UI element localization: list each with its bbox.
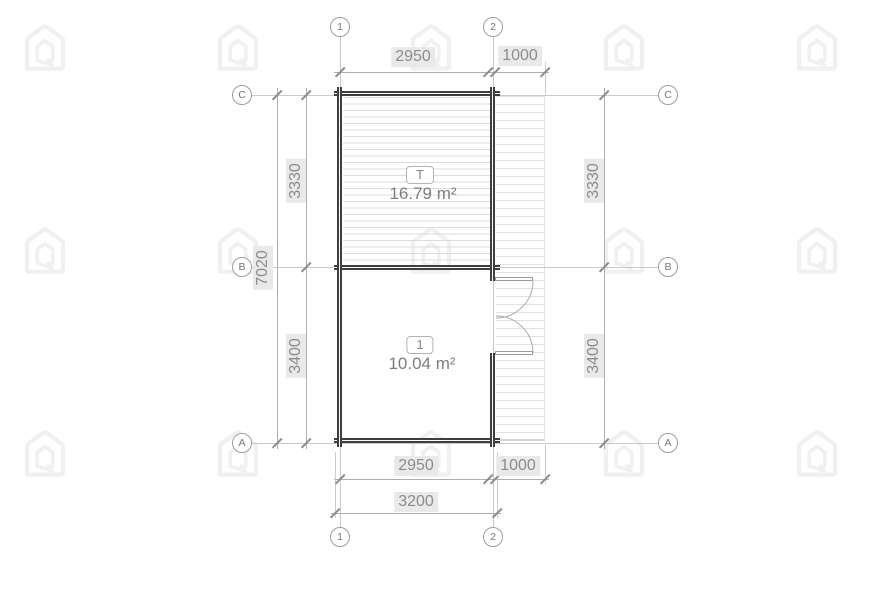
grid-bubble-1-top: 1 bbox=[330, 17, 350, 37]
grid-line-A bbox=[252, 443, 659, 444]
house-logo-watermark-icon bbox=[208, 17, 268, 77]
dim-line-top bbox=[334, 72, 549, 73]
dim-label-left-3400: 3400 bbox=[286, 334, 306, 378]
floor-plan-canvas: 2950 1000 2950 1000 3200 7020 3330 3400 … bbox=[0, 0, 886, 590]
room-area-1: 10.04 m² bbox=[388, 354, 455, 374]
grid-bubble-C-left: C bbox=[232, 85, 252, 105]
grid-bubble-A-right: A bbox=[658, 433, 678, 453]
grid-bubble-1-bottom: 1 bbox=[330, 527, 350, 547]
terrace-hatch bbox=[496, 96, 545, 441]
door-swing-arcs bbox=[490, 270, 545, 360]
dim-label-left-7020: 7020 bbox=[253, 246, 273, 290]
dim-label-right-3330: 3330 bbox=[584, 159, 604, 203]
room-tag-1: 1 bbox=[406, 336, 433, 354]
grid-bubble-B-left: B bbox=[232, 257, 252, 277]
wall-left bbox=[337, 87, 342, 447]
grid-bubble-C-right: C bbox=[658, 85, 678, 105]
grid-bubble-2-bottom: 2 bbox=[483, 527, 503, 547]
room-area-t: 16.79 m² bbox=[389, 184, 456, 204]
dim-line-bottom-2 bbox=[331, 513, 501, 514]
wall-right-upper bbox=[490, 87, 495, 281]
dim-label-bottom-3200: 3200 bbox=[394, 492, 438, 512]
dim-label-right-3400: 3400 bbox=[584, 334, 604, 378]
house-logo-watermark-icon bbox=[15, 17, 75, 77]
dim-line-left-outer bbox=[277, 88, 278, 449]
house-logo-watermark-icon bbox=[208, 423, 268, 483]
house-logo-watermark-icon bbox=[15, 220, 75, 280]
dim-label-bottom-2950: 2950 bbox=[394, 456, 438, 476]
dim-label-left-3330: 3330 bbox=[286, 159, 306, 203]
house-logo-watermark-icon bbox=[594, 220, 654, 280]
dim-line-right bbox=[604, 88, 605, 449]
wall-bottom bbox=[334, 438, 500, 443]
room-tag-t: T bbox=[406, 166, 434, 184]
door-leaf-top bbox=[495, 277, 533, 281]
extension-line bbox=[335, 452, 336, 518]
house-logo-watermark-icon bbox=[594, 17, 654, 77]
house-logo-watermark-icon bbox=[15, 423, 75, 483]
grid-bubble-A-left: A bbox=[232, 433, 252, 453]
extension-line bbox=[545, 62, 546, 94]
dim-line-left-inner bbox=[306, 88, 307, 449]
grid-bubble-2-top: 2 bbox=[483, 17, 503, 37]
house-logo-watermark-icon bbox=[787, 423, 847, 483]
dim-label-top-1000: 1000 bbox=[498, 46, 542, 66]
wall-top bbox=[334, 91, 500, 96]
house-logo-watermark-icon bbox=[787, 220, 847, 280]
grid-bubble-B-right: B bbox=[658, 257, 678, 277]
wall-right-lower bbox=[490, 353, 495, 447]
house-logo-watermark-icon bbox=[594, 423, 654, 483]
wall-middle bbox=[334, 265, 500, 270]
house-logo-watermark-icon bbox=[787, 17, 847, 77]
door-leaf-bottom bbox=[495, 351, 533, 355]
dim-label-top-2950: 2950 bbox=[391, 47, 435, 67]
dim-label-bottom-1000: 1000 bbox=[496, 456, 540, 476]
dim-line-bottom-1 bbox=[334, 479, 549, 480]
